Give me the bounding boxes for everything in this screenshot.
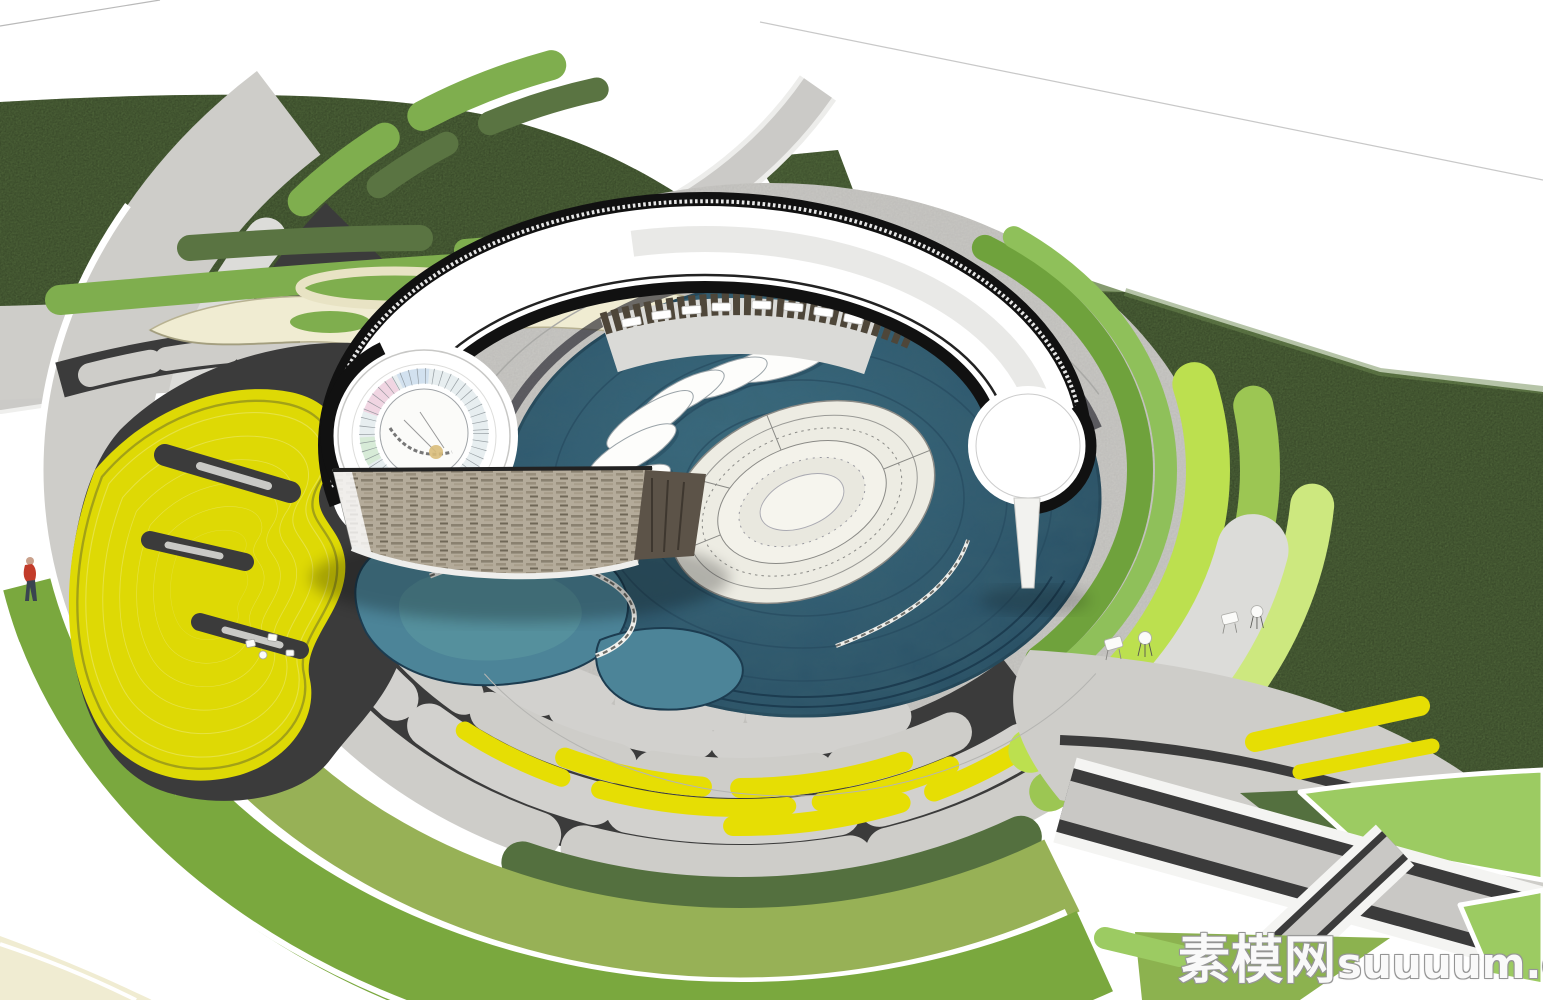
render-viewport: 素模网suuuum.com: [0, 0, 1543, 1000]
inner-dark-wall: [634, 470, 706, 560]
watermark: 素模网suuuum.com: [1178, 918, 1543, 993]
column-shadow: [980, 586, 1090, 614]
watermark-site-name: 素模网: [1178, 931, 1337, 991]
watermark-domain: suuuum.com: [1337, 939, 1543, 988]
landscape-render: [0, 0, 1543, 1000]
